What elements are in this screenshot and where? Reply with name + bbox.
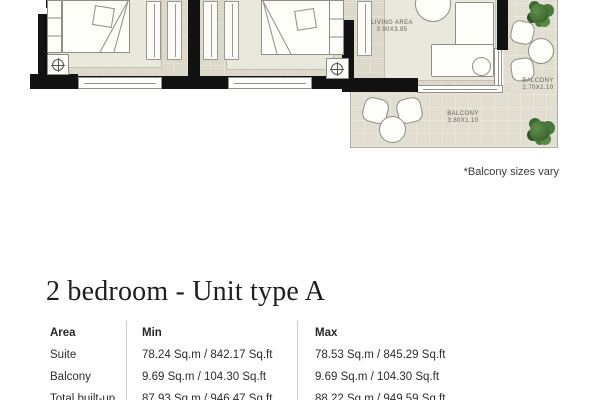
table-divider xyxy=(297,321,298,400)
row-min-value: 87.93 Sq.m / 946.47 Sq.ft xyxy=(142,393,272,400)
col-header-area: Area xyxy=(50,327,76,339)
col-header-max: Max xyxy=(315,327,337,339)
row-label: Total built-up xyxy=(50,393,115,400)
row-max-value: 88.22 Sq.m / 949.59 Sq.ft xyxy=(315,393,445,400)
table-divider xyxy=(126,321,127,400)
floorplan-page: LIVING AREA 3.90X3.85 BALCONY 2.70X1.10 … xyxy=(0,0,600,400)
row-max-value: 78.53 Sq.m / 845.29 Sq.ft xyxy=(315,349,445,361)
row-min-value: 9.69 Sq.m / 104.30 Sq.ft xyxy=(142,371,266,383)
row-label: Balcony xyxy=(50,371,91,383)
row-label: Suite xyxy=(50,349,76,361)
area-table: Area Min Max Suite 78.24 Sq.m / 842.17 S… xyxy=(0,0,600,400)
row-max-value: 9.69 Sq.m / 104.30 Sq.ft xyxy=(315,371,439,383)
col-header-min: Min xyxy=(142,327,162,339)
row-min-value: 78.24 Sq.m / 842.17 Sq.ft xyxy=(142,349,272,361)
